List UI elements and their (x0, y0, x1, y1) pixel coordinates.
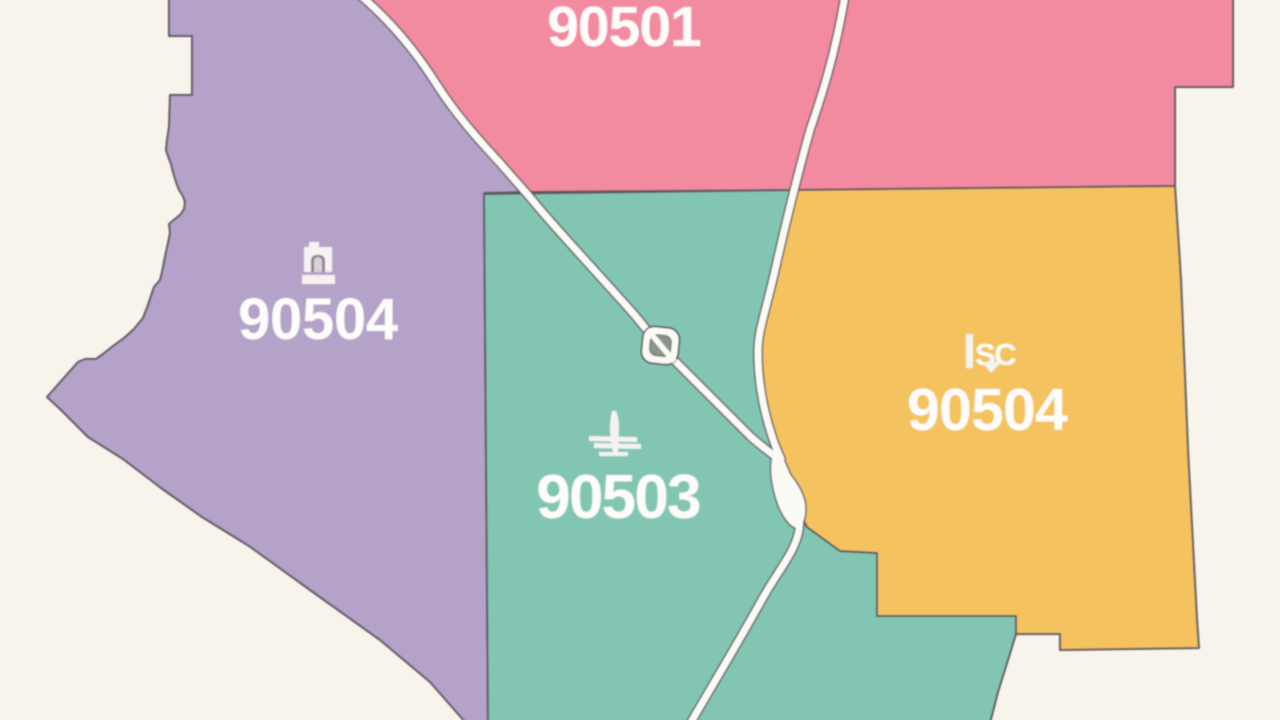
svg-text:90501: 90501 (547, 0, 701, 59)
svg-text:90503: 90503 (536, 463, 700, 532)
svg-text:90504: 90504 (238, 287, 398, 352)
svg-text:90504: 90504 (907, 377, 1068, 443)
